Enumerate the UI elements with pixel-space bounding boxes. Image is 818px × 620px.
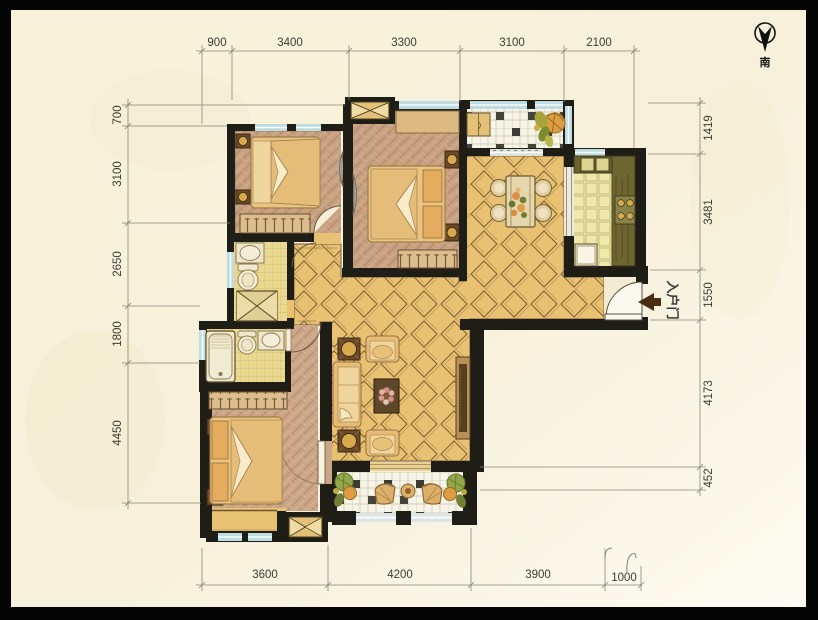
svg-text:3481: 3481 [703, 199, 715, 225]
svg-text:2650: 2650 [112, 251, 124, 277]
svg-text:3900: 3900 [525, 569, 551, 581]
svg-text:700: 700 [112, 105, 124, 124]
svg-text:3400: 3400 [277, 37, 303, 49]
svg-text:南: 南 [760, 55, 771, 69]
svg-text:3300: 3300 [391, 37, 417, 49]
svg-text:2100: 2100 [586, 37, 612, 49]
svg-text:4450: 4450 [112, 420, 124, 446]
svg-text:1550: 1550 [703, 282, 715, 308]
svg-text:1000: 1000 [611, 572, 637, 584]
svg-text:1419: 1419 [703, 115, 715, 141]
svg-text:4173: 4173 [703, 380, 715, 406]
svg-text:3100: 3100 [499, 37, 525, 49]
svg-text:4200: 4200 [387, 569, 413, 581]
svg-text:3100: 3100 [112, 161, 124, 187]
svg-text:452: 452 [703, 468, 715, 487]
svg-text:入户门: 入户门 [665, 280, 680, 319]
svg-text:3600: 3600 [252, 569, 278, 581]
svg-text:900: 900 [207, 37, 226, 49]
svg-text:1800: 1800 [112, 321, 124, 347]
